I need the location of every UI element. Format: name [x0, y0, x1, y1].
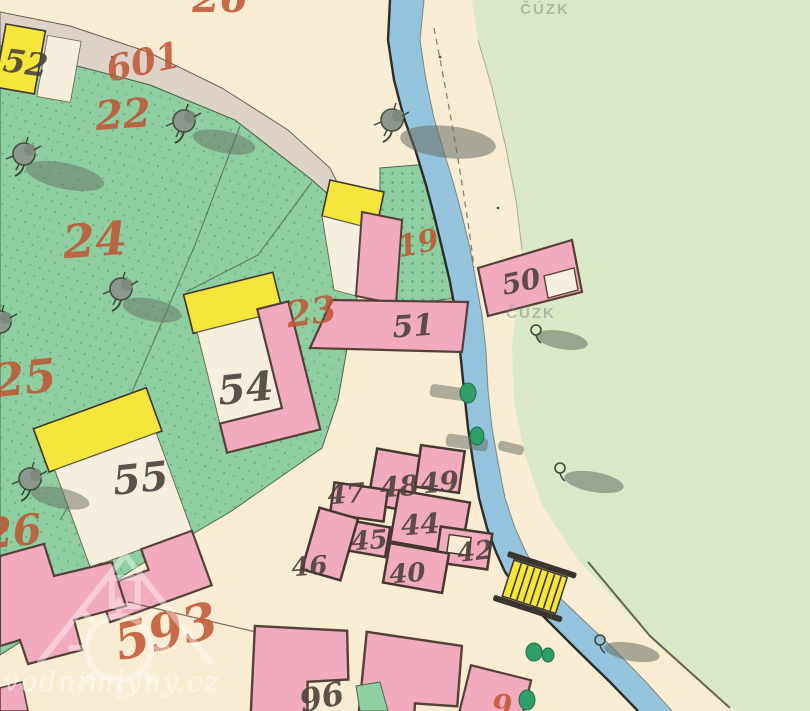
- house-number-48: 48: [379, 469, 420, 505]
- parcel-number-top-partial: 26: [191, 0, 248, 22]
- house-number-49: 49: [419, 465, 460, 501]
- parcel-number-bottom-partial: 9: [492, 689, 513, 711]
- house-number-47: 47: [327, 478, 367, 512]
- house-number-52: 52: [1, 41, 50, 85]
- house-number-51: 51: [391, 308, 435, 346]
- house-number-42: 42: [456, 535, 495, 569]
- site-watermark: vodnimlyny.cz: [3, 667, 220, 698]
- parcel-number-22: 22: [93, 89, 153, 140]
- parcel-number-24: 24: [60, 211, 129, 269]
- parcel-number-25: 25: [0, 348, 59, 409]
- map-canvas[interactable]: 2660122242526231959395254555150474849454…: [0, 0, 810, 711]
- house-number-44: 44: [400, 507, 441, 543]
- house-number-40: 40: [388, 558, 426, 590]
- house-number-55: 55: [110, 452, 170, 505]
- cuzk-watermark-middle: ČÚZK: [506, 304, 556, 322]
- parcel-number-26: 26: [0, 504, 44, 559]
- cadastral-map: 2660122242526231959395254555150474849454…: [0, 0, 810, 711]
- house-number-46: 46: [290, 551, 328, 583]
- parcel-number-23: 23: [283, 288, 339, 337]
- house-number-45: 45: [350, 525, 388, 557]
- house-number-54: 54: [215, 362, 275, 415]
- cuzk-watermark-top: ČÚZK: [520, 0, 570, 18]
